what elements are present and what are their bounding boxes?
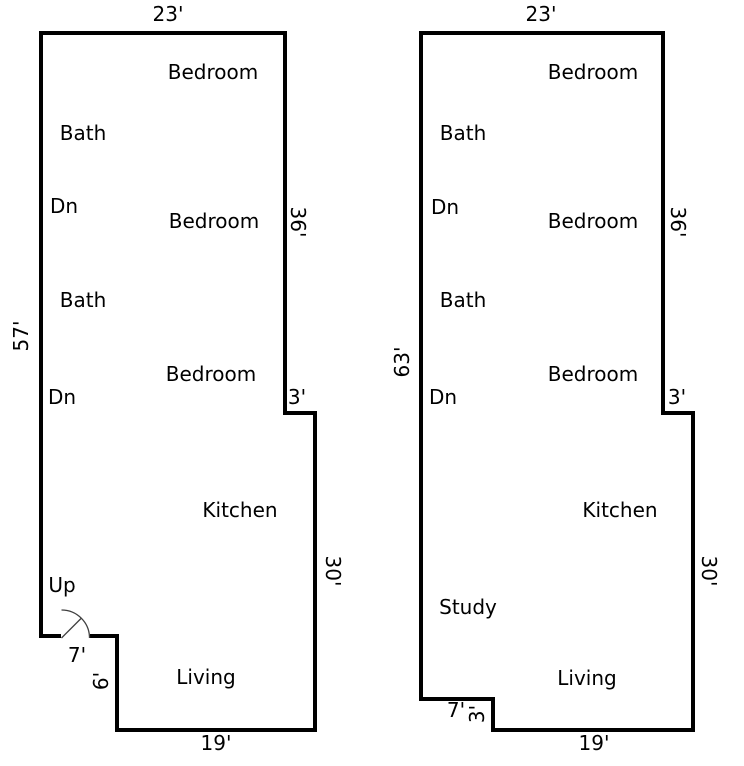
right-dim-step-bottom: 7' bbox=[447, 700, 465, 720]
right-dim-right-lower: 30' bbox=[699, 556, 719, 587]
left-room-bedroom-upper: Bedroom bbox=[168, 62, 258, 82]
left-room-bedroom-lower: Bedroom bbox=[166, 364, 256, 384]
left-dim-step-bottom: 7' bbox=[68, 645, 86, 665]
left-plan-door-leaf bbox=[62, 618, 82, 638]
left-dim-step-side: 6' bbox=[91, 672, 111, 690]
right-room-bedroom-lower: Bedroom bbox=[548, 364, 638, 384]
right-room-kitchen: Kitchen bbox=[582, 500, 657, 520]
left-room-up: Up bbox=[48, 575, 75, 595]
right-room-study: Study bbox=[439, 597, 497, 617]
left-room-dn-upper: Dn bbox=[50, 196, 78, 216]
right-dim-step-side: 3' bbox=[467, 705, 487, 723]
left-dim-right-step: 3' bbox=[288, 387, 306, 407]
right-room-bath-upper: Bath bbox=[440, 123, 487, 143]
right-room-dn-upper: Dn bbox=[431, 197, 459, 217]
right-dim-top-width: 23' bbox=[526, 4, 557, 24]
left-room-dn-lower: Dn bbox=[48, 387, 76, 407]
right-room-bedroom-upper: Bedroom bbox=[548, 62, 638, 82]
left-dim-right-lower: 30' bbox=[323, 556, 343, 587]
right-dim-left-height: 63' bbox=[392, 347, 412, 378]
left-room-kitchen: Kitchen bbox=[202, 500, 277, 520]
left-dim-left-height: 57' bbox=[11, 321, 31, 352]
right-room-dn-lower: Dn bbox=[429, 387, 457, 407]
right-dim-right-upper: 36' bbox=[668, 207, 688, 238]
right-dim-bottom-width: 19' bbox=[579, 733, 610, 753]
left-dim-right-upper: 36' bbox=[288, 207, 308, 238]
right-dim-right-step: 3' bbox=[668, 387, 686, 407]
left-dim-bottom-width: 19' bbox=[201, 733, 232, 753]
left-room-bath-upper: Bath bbox=[60, 123, 107, 143]
right-room-bedroom-middle: Bedroom bbox=[548, 211, 638, 231]
left-dim-top-width: 23' bbox=[153, 4, 184, 24]
left-room-bath-lower: Bath bbox=[60, 290, 107, 310]
right-room-bath-lower: Bath bbox=[440, 290, 487, 310]
left-room-living: Living bbox=[176, 667, 235, 687]
floor-plans-canvas: 23' Bedroom Bath Dn Bedroom 36' Bath 57'… bbox=[0, 0, 744, 766]
right-room-living: Living bbox=[557, 668, 616, 688]
left-room-bedroom-middle: Bedroom bbox=[169, 211, 259, 231]
